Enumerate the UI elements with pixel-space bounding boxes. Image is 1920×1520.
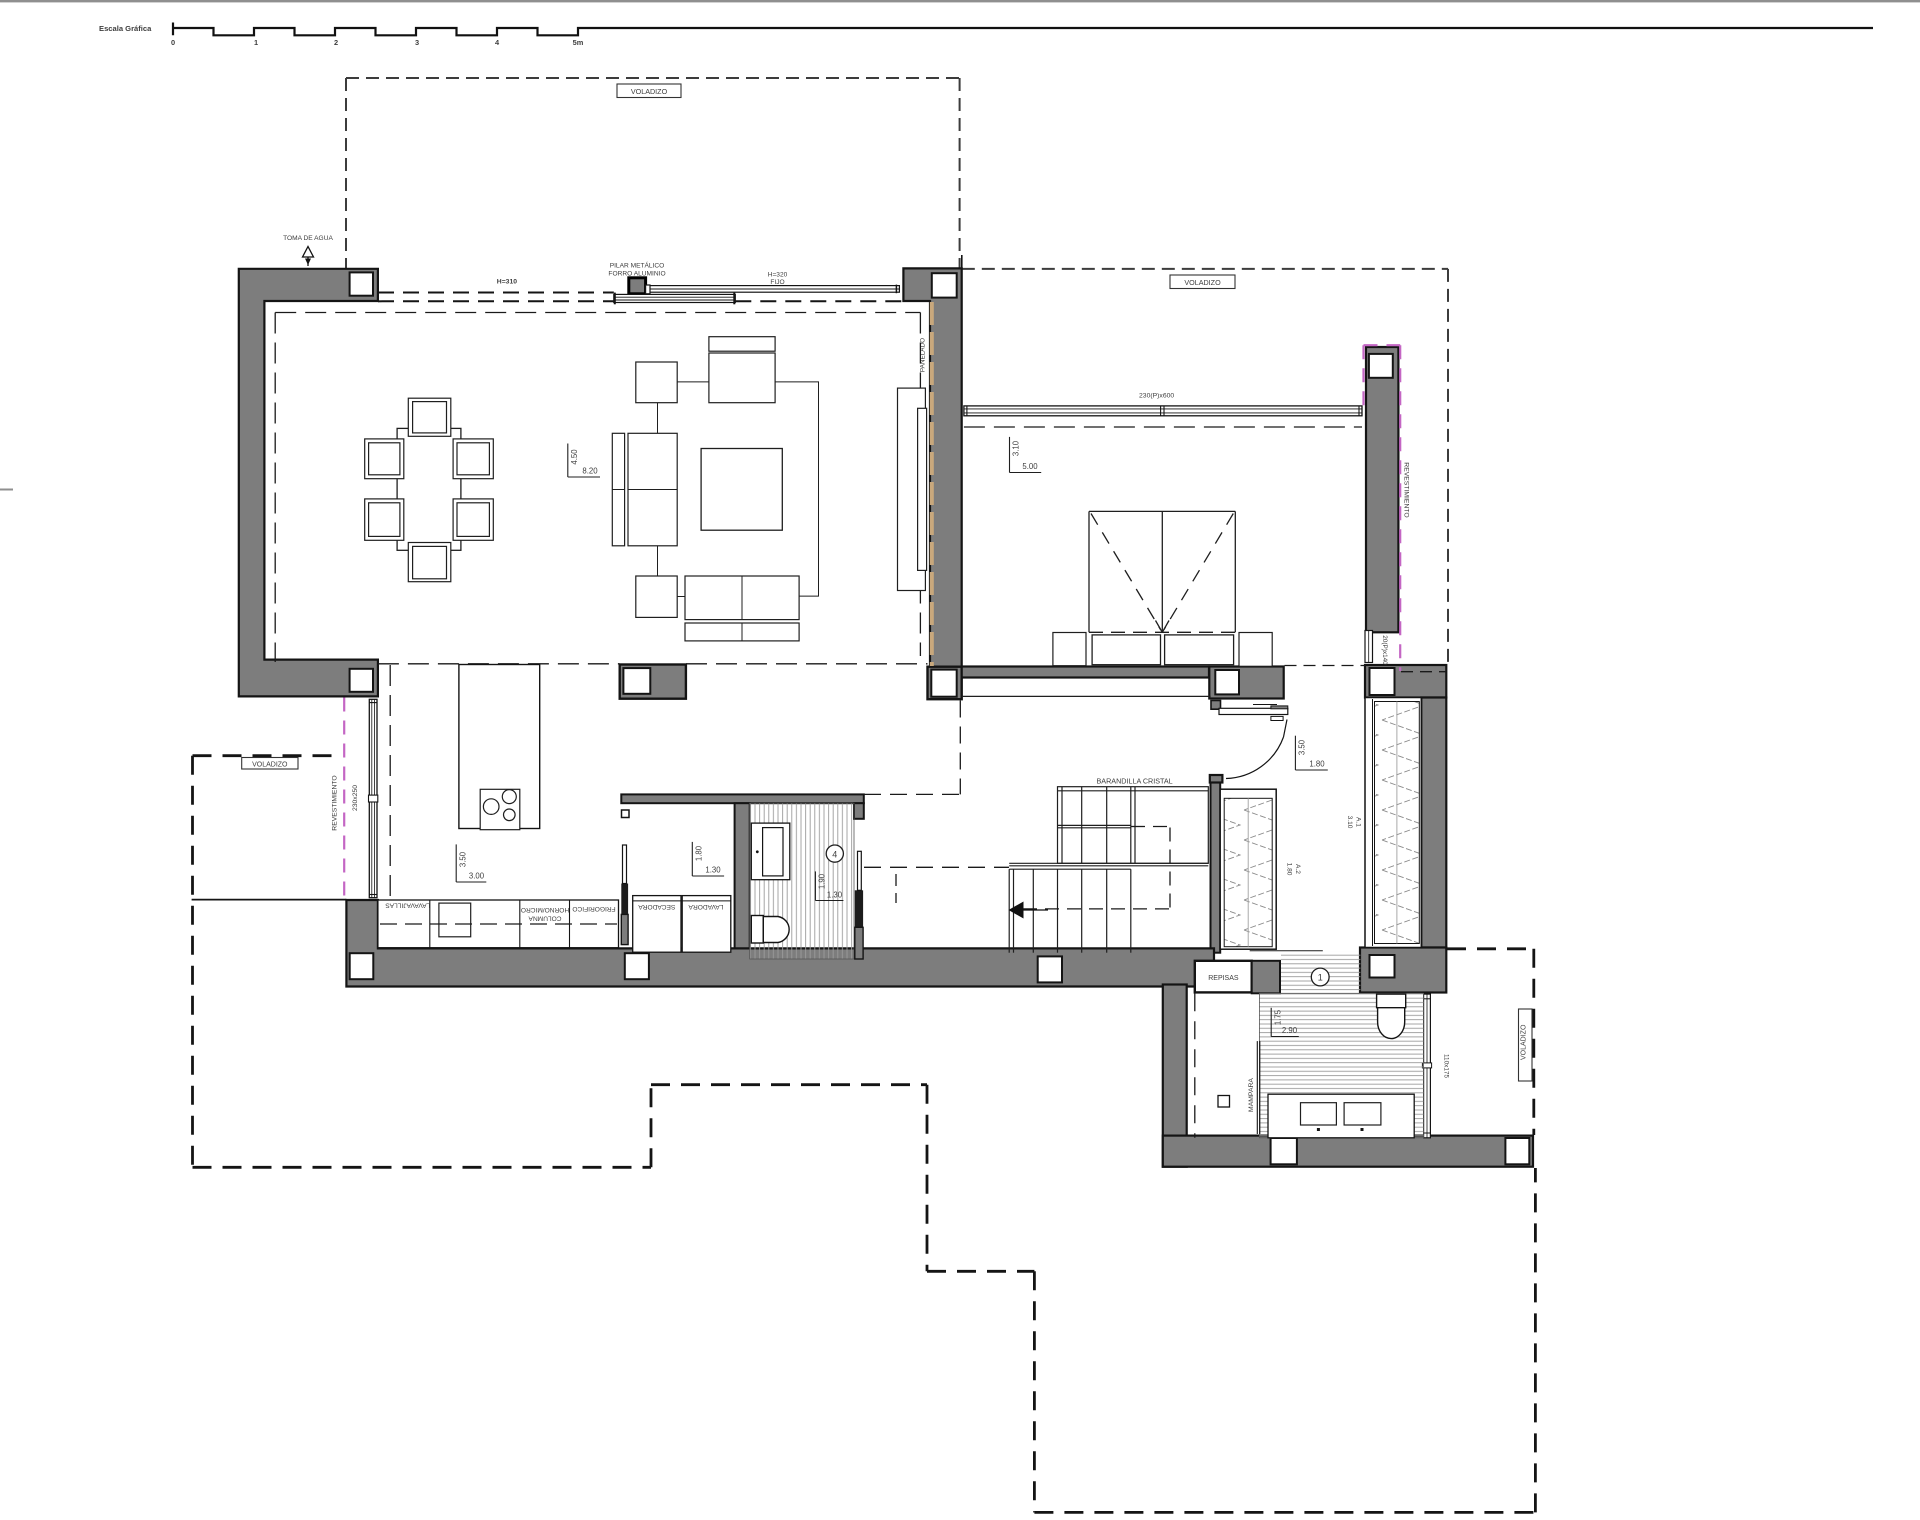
- svg-text:REVESTIMIENTO: REVESTIMIENTO: [332, 775, 339, 830]
- svg-text:110x175: 110x175: [1443, 1054, 1450, 1078]
- svg-text:230x250: 230x250: [352, 785, 359, 811]
- svg-text:VOLADIZO: VOLADIZO: [1184, 278, 1221, 287]
- svg-text:1: 1: [1318, 973, 1323, 983]
- svg-text:VOLADIZO: VOLADIZO: [252, 762, 288, 769]
- svg-text:Escala Gráfica: Escala Gráfica: [99, 24, 152, 33]
- svg-text:3.50: 3.50: [459, 851, 468, 867]
- svg-text:H=320: H=320: [768, 271, 788, 278]
- svg-text:MAMPARA: MAMPARA: [1248, 1078, 1255, 1112]
- svg-text:1.80: 1.80: [695, 845, 704, 861]
- svg-text:FRIGORIFICO: FRIGORIFICO: [572, 905, 615, 912]
- svg-text:REVESTIMIENTO: REVESTIMIENTO: [1403, 462, 1410, 517]
- svg-text:5m: 5m: [573, 38, 584, 47]
- svg-text:3.10: 3.10: [1012, 440, 1021, 456]
- svg-text:A.2: A.2: [1294, 864, 1301, 874]
- svg-text:4: 4: [832, 849, 837, 859]
- svg-text:1.90: 1.90: [818, 873, 827, 889]
- svg-text:0: 0: [171, 38, 175, 47]
- svg-text:REPISAS: REPISAS: [1208, 975, 1239, 982]
- svg-text:A.1: A.1: [1355, 817, 1362, 827]
- svg-text:3.10: 3.10: [1346, 816, 1353, 829]
- svg-text:3: 3: [415, 38, 419, 47]
- svg-text:FIJO: FIJO: [770, 279, 784, 286]
- svg-text:HORNO/MICRO: HORNO/MICRO: [521, 906, 569, 913]
- svg-text:BARANDILLA CRISTAL: BARANDILLA CRISTAL: [1097, 776, 1173, 785]
- svg-text:TOMA DE AGUA: TOMA DE AGUA: [283, 235, 333, 242]
- svg-text:3.00: 3.00: [469, 872, 485, 881]
- svg-text:1.80: 1.80: [1309, 760, 1325, 769]
- svg-text:2.90: 2.90: [1282, 1026, 1298, 1035]
- svg-text:LAVADORA: LAVADORA: [688, 903, 724, 910]
- svg-text:4.50: 4.50: [570, 449, 579, 465]
- svg-text:8.20: 8.20: [582, 467, 598, 476]
- svg-text:FORRO ALUMINIO: FORRO ALUMINIO: [608, 271, 665, 278]
- svg-text:COLUMNA: COLUMNA: [528, 915, 562, 922]
- svg-text:LAVAVAJILLAS: LAVAVAJILLAS: [385, 902, 431, 909]
- svg-text:SECADORA: SECADORA: [638, 903, 676, 910]
- svg-text:230(P)x600: 230(P)x600: [1139, 392, 1174, 399]
- svg-text:H=310: H=310: [497, 278, 517, 285]
- svg-text:2: 2: [334, 38, 338, 47]
- svg-text:1: 1: [254, 38, 258, 47]
- svg-text:3.50: 3.50: [1298, 739, 1307, 755]
- svg-text:1.80: 1.80: [1286, 863, 1293, 876]
- svg-text:1.75: 1.75: [1273, 1009, 1282, 1025]
- svg-text:1.30: 1.30: [827, 891, 843, 900]
- svg-text:VOLADIZO: VOLADIZO: [631, 87, 668, 96]
- svg-text:1.30: 1.30: [705, 866, 721, 875]
- svg-text:PILAR METÁLICO: PILAR METÁLICO: [610, 260, 665, 269]
- svg-text:5.00: 5.00: [1022, 462, 1038, 471]
- svg-text:VOLADIZO: VOLADIZO: [1520, 1024, 1527, 1060]
- svg-text:20(P)x140: 20(P)x140: [1381, 635, 1388, 665]
